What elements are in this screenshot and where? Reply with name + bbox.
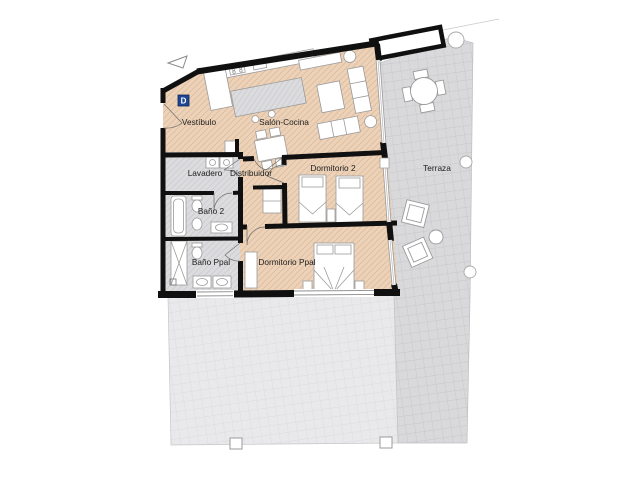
double-sink (213, 276, 231, 288)
room-label-dormitorio2: Dormitorio 2 (310, 163, 356, 173)
floor-plan: D Vestíbulo Salón-Cocina Lavadero Distri… (0, 0, 640, 480)
terrace-lower-paving (168, 294, 398, 445)
side-table (429, 230, 443, 244)
single-bed-1 (299, 175, 326, 222)
room-label-bano2: Baño 2 (198, 206, 225, 216)
unit-badge-label: D (181, 97, 187, 106)
nightstand (327, 209, 335, 222)
room-label-vestibulo: Vestíbulo (182, 117, 217, 127)
column-base (230, 438, 242, 449)
toilet-tank (192, 243, 202, 247)
pillar (380, 158, 389, 168)
room-label-salon-cocina: Salón-Cocina (259, 117, 309, 127)
triangle-marker-icon (168, 56, 187, 68)
wardrobe (245, 252, 257, 288)
vestibule-closet (225, 141, 236, 154)
window-bottom-bath (196, 290, 234, 298)
guide-line (443, 19, 499, 30)
coffee-table (317, 81, 345, 113)
column-marker (448, 32, 464, 48)
unit-badge: D (178, 95, 189, 106)
double-sink (193, 276, 211, 288)
floor-plan-page: D Vestíbulo Salón-Cocina Lavadero Distri… (0, 0, 640, 480)
dryer (220, 157, 233, 168)
column-marker (464, 266, 476, 278)
washer (206, 157, 219, 168)
bidet (192, 218, 202, 230)
window-bottom-bedroom (294, 289, 374, 297)
toilet-tank (192, 196, 202, 200)
room-label-dormitorio-ppal: Dormitorio Ppal (258, 257, 315, 267)
room-label-distribuidor: Distribuidor (230, 168, 272, 178)
single-bed-2 (336, 176, 363, 223)
column-base (380, 437, 392, 448)
terrace-round-table (411, 78, 438, 105)
room-label-lavadero: Lavadero (188, 168, 223, 178)
room-label-terraza: Terraza (423, 163, 451, 173)
room-label-bano-ppal: Baño Ppal (192, 257, 230, 267)
column-marker (460, 156, 472, 168)
double-bed (314, 243, 354, 292)
